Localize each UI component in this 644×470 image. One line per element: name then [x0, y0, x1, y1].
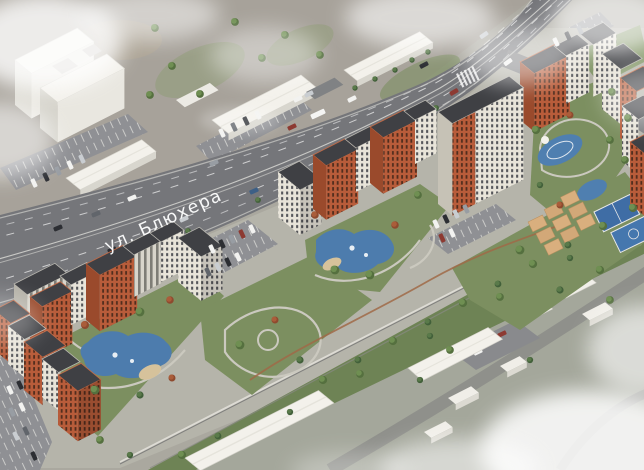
tree: [556, 286, 563, 293]
tree-autumn: [169, 375, 176, 382]
tree: [495, 281, 502, 288]
tree-autumn: [391, 221, 399, 229]
tree-autumn: [166, 296, 174, 304]
tree: [392, 67, 397, 72]
tree: [168, 62, 176, 70]
pavilion: [541, 136, 549, 144]
tree: [537, 182, 543, 188]
tree: [372, 76, 377, 81]
tree: [427, 333, 433, 339]
tree-autumn: [311, 211, 319, 219]
tree: [136, 308, 145, 317]
tree: [459, 299, 467, 307]
render-canvas: ул. Блюхера: [0, 0, 644, 470]
tree: [527, 357, 533, 363]
trampoline: [364, 253, 368, 257]
tree: [296, 356, 303, 363]
tree: [496, 293, 504, 301]
tree: [146, 91, 154, 99]
tree: [319, 376, 327, 384]
fog-wisp: [200, 106, 280, 134]
tree: [352, 85, 357, 90]
tree: [389, 337, 397, 345]
tree: [136, 391, 143, 398]
tree: [516, 246, 525, 255]
tree: [596, 266, 604, 274]
aerial-render-image: ул. Блюхера: [0, 0, 644, 470]
tree: [606, 136, 614, 144]
tree: [287, 409, 293, 415]
tree: [91, 386, 100, 395]
tree: [178, 451, 186, 459]
tree: [606, 296, 614, 304]
tree: [532, 126, 540, 134]
tree: [621, 156, 629, 164]
tree: [331, 266, 340, 275]
tree: [414, 191, 422, 199]
tree: [629, 204, 637, 212]
tree: [425, 319, 432, 326]
building-tower-orange: [58, 363, 101, 441]
fog-cloud: [210, 27, 320, 83]
tree: [236, 341, 245, 350]
tree: [409, 57, 414, 62]
tree: [366, 271, 375, 280]
tree: [565, 242, 572, 249]
tree: [567, 255, 573, 261]
tree: [96, 436, 104, 444]
tree: [417, 377, 423, 383]
tree: [215, 433, 222, 440]
tree: [446, 346, 454, 354]
tree-autumn: [567, 112, 574, 119]
tree: [127, 452, 133, 458]
tree: [425, 49, 430, 54]
tree: [355, 357, 362, 364]
trampoline: [130, 359, 134, 363]
tree: [255, 197, 261, 203]
tree: [529, 260, 537, 268]
tree-autumn: [272, 317, 279, 324]
tree: [196, 90, 204, 98]
tree: [356, 370, 364, 378]
tree: [599, 222, 607, 230]
trampoline: [112, 352, 117, 357]
tree-autumn: [81, 321, 89, 329]
tree: [231, 18, 239, 26]
tree-autumn: [557, 202, 564, 209]
trampoline: [349, 245, 354, 250]
